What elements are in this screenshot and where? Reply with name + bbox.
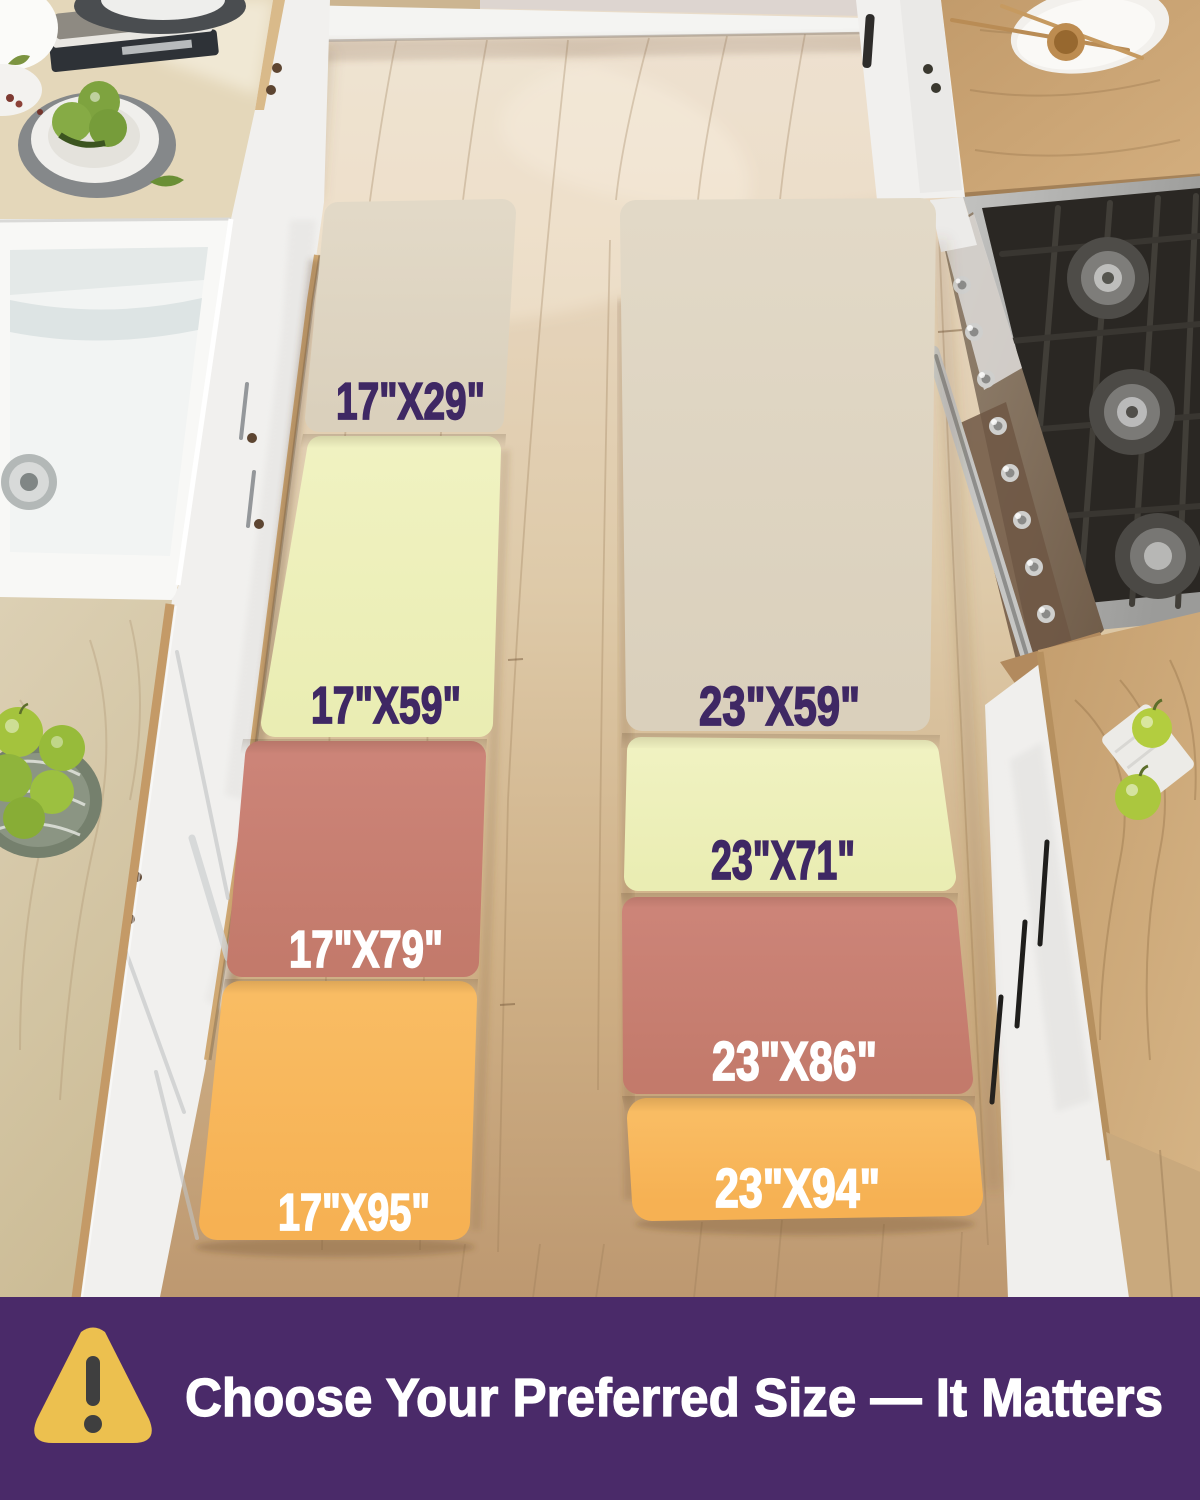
svg-text:17"X59": 17"X59": [311, 677, 461, 735]
svg-text:23"X86": 23"X86": [712, 1030, 877, 1092]
svg-text:23"X71": 23"X71": [711, 829, 855, 891]
svg-text:17"X95": 17"X95": [278, 1184, 430, 1242]
svg-text:23"X59": 23"X59": [699, 675, 860, 737]
svg-text:17"X29": 17"X29": [336, 373, 485, 431]
svg-text:Choose Your Preferred Size — I: Choose Your Preferred Size — It Matters: [185, 1368, 1163, 1428]
svg-text:17"X79": 17"X79": [289, 921, 443, 979]
svg-text:23"X94": 23"X94": [715, 1157, 880, 1219]
